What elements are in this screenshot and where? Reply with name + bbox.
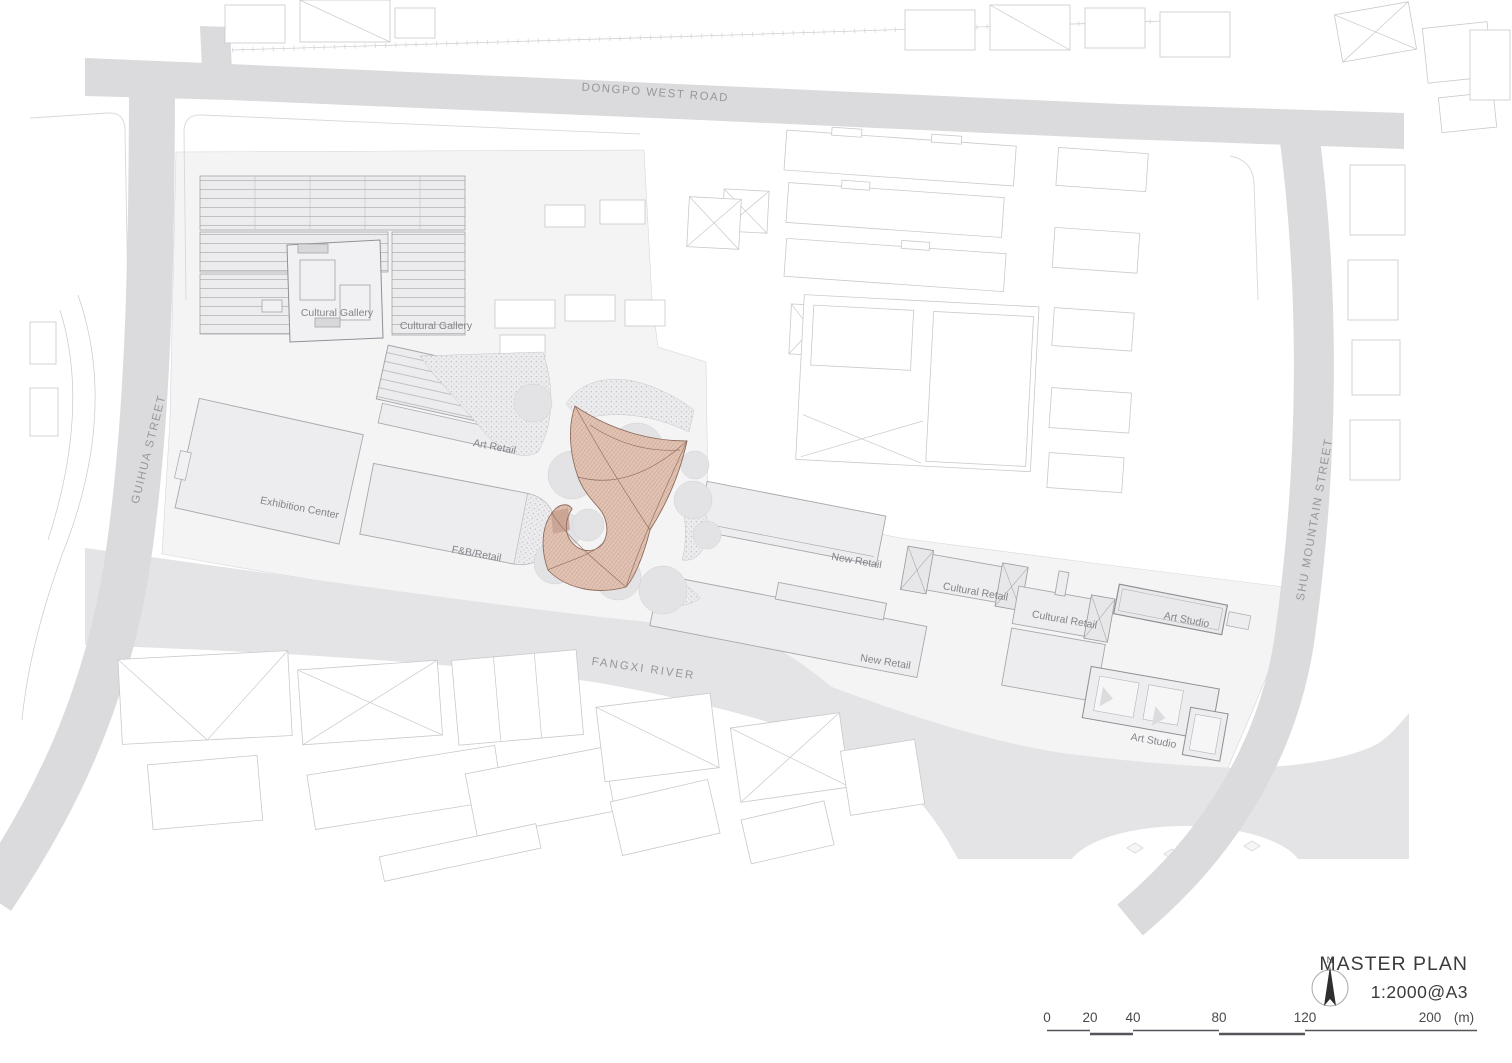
scale-tick-200: 200	[1419, 1010, 1442, 1025]
scale-tick-0: 0	[1043, 1010, 1051, 1025]
plan-title: MASTER PLAN	[1319, 953, 1468, 975]
scale-unit: (m)	[1454, 1010, 1474, 1025]
title-block: N MASTER PLAN 1:2000@A3 0 20 40 80 120 2…	[1043, 953, 1477, 1034]
label-cultural-gallery-2: Cultural Gallery	[400, 320, 473, 332]
master-plan-sheet: DONGPO WEST ROAD GUIHUA STREET SHU MOUNT…	[0, 0, 1512, 1063]
plan-scale: 1:2000@A3	[1371, 982, 1468, 1002]
guihua-street-band	[0, 68, 152, 898]
scale-tick-80: 80	[1211, 1010, 1226, 1025]
master-plan-drawing: DONGPO WEST ROAD GUIHUA STREET SHU MOUNT…	[0, 0, 1512, 1063]
label-cultural-gallery-1: Cultural Gallery	[301, 307, 374, 319]
scale-tick-20: 20	[1082, 1010, 1097, 1025]
scale-tick-120: 120	[1294, 1010, 1317, 1025]
dongpo-west-road-band	[85, 58, 1404, 149]
scale-tick-40: 40	[1125, 1010, 1140, 1025]
scale-bar: 0 20 40 80 120 200 (m)	[1043, 1010, 1477, 1034]
